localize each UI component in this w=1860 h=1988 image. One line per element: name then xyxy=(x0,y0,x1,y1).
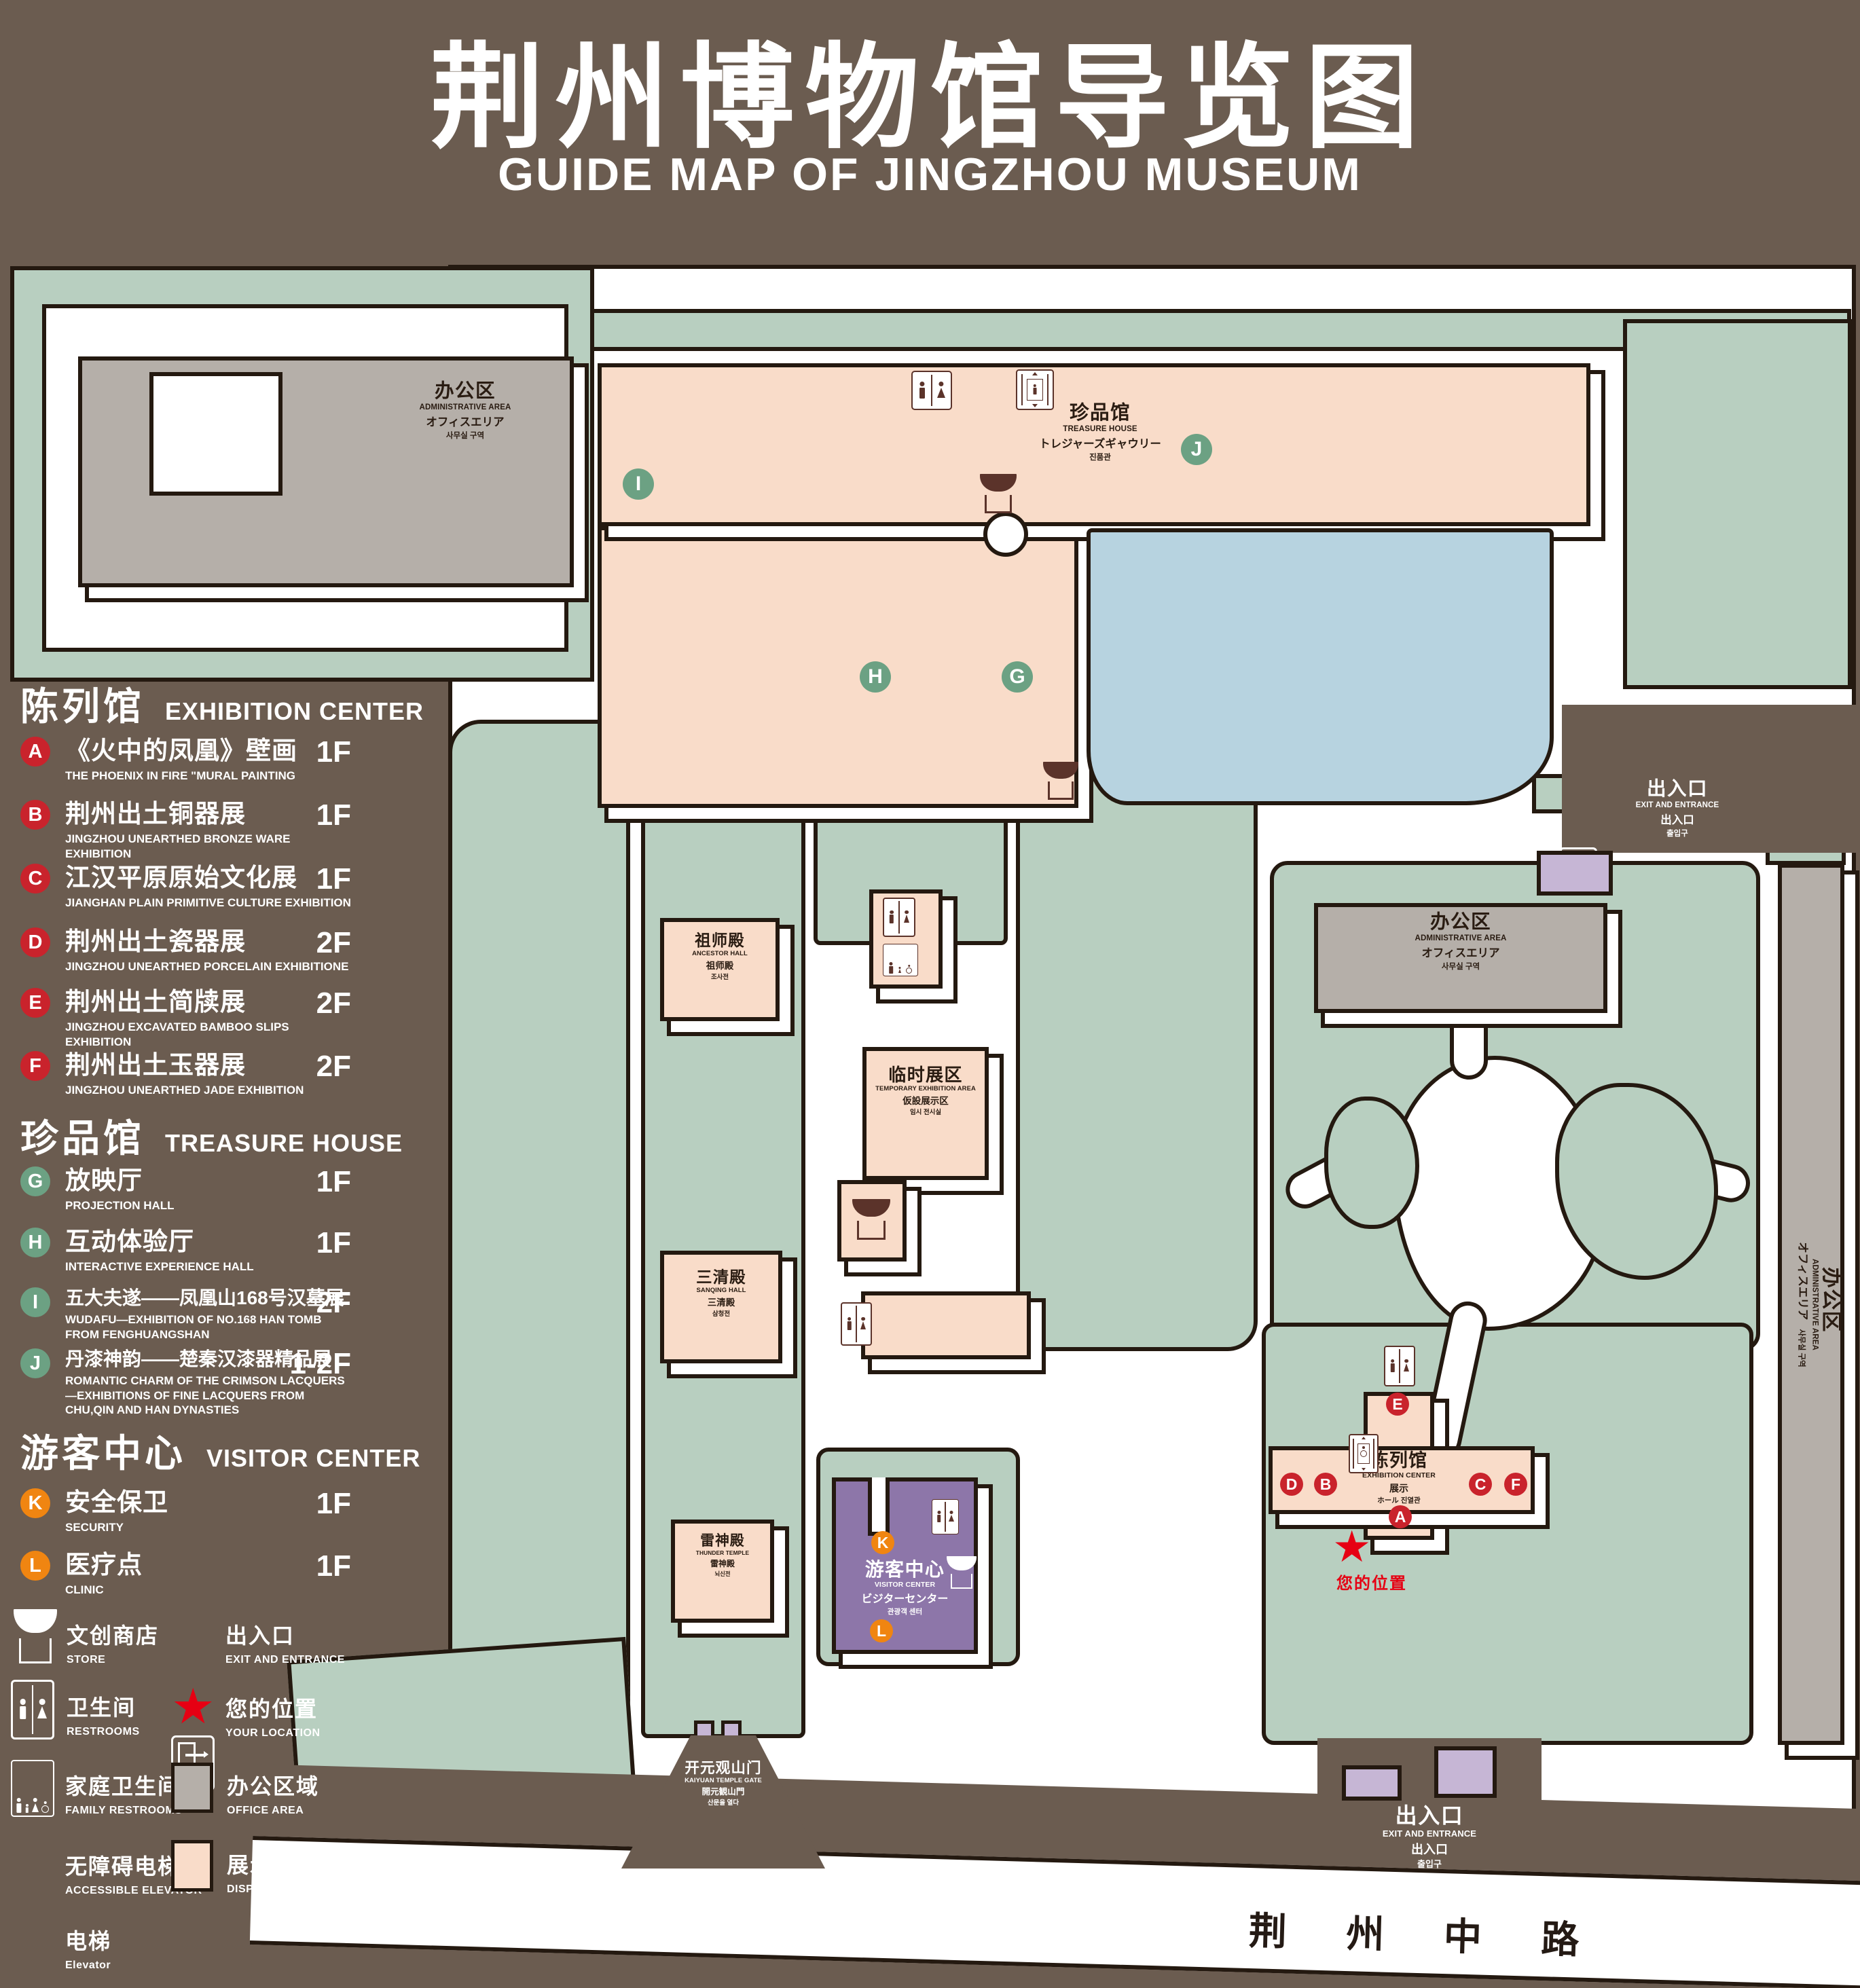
ancestor-hall-label: 祖师殿 ANCESTOR HALL 祖师殿 조사전 xyxy=(660,932,780,981)
family-restroom-icon xyxy=(883,944,918,976)
page-subtitle: GUIDE MAP OF JINGZHOU MUSEUM xyxy=(0,148,1860,201)
admin-side-label: 办公区 ADMINISTRATIVE AREA オフィスエリア 사무실 구역 xyxy=(1779,1067,1844,1543)
lawn-west-column xyxy=(448,720,630,1738)
store-icon xyxy=(980,474,1017,513)
legend-item-g: G 放映厅 PROJECTION HALL 1F xyxy=(20,1166,351,1213)
legend-item-a: A 《火中的凤凰》壁画 THE PHOENIX IN FIRE "MURAL P… xyxy=(20,737,351,784)
legend-item-k: K 安全保卫 SECURITY 1F xyxy=(20,1488,351,1535)
map-badge-k: K xyxy=(871,1531,894,1554)
legend-item-h: H 互动体验厅 INTERACTIVE EXPERIENCE HALL 1F xyxy=(20,1228,351,1274)
badge-k: K xyxy=(20,1488,50,1518)
treasure-house-label: 珍品馆 TREASURE HOUSE トレジャーズギャウリー 진품관 xyxy=(998,402,1202,463)
lawn-east-bit-2 xyxy=(1532,774,1566,813)
store-icon xyxy=(852,1199,890,1240)
legend-symbol-office-area: 办公区域OFFICE AREA xyxy=(227,1769,319,1817)
display-area-swatch xyxy=(171,1840,213,1892)
store-icon xyxy=(1043,762,1078,800)
map-badge-a: A xyxy=(1389,1505,1412,1528)
legend-item-j: J 丹漆神韵——楚秦汉漆器精品展 ROMANTIC CHARM OF THE C… xyxy=(20,1348,351,1417)
map-badge-l: L xyxy=(870,1619,893,1642)
legend-symbol-restrooms: 卫生间RESTROOMS xyxy=(67,1691,140,1738)
restroom-icon xyxy=(932,1499,959,1534)
temporary-exhibition-label: 临时展区 TEMPORARY EXHIBITION AREA 仮設展示区 임시 … xyxy=(854,1065,997,1116)
sanqing-hall-label: 三清殿 SANQING HALL 三清殿 삼청전 xyxy=(660,1268,782,1318)
store-icon xyxy=(14,1609,57,1663)
building-southeast-hall xyxy=(861,1291,1031,1359)
east-exit-label: 出入口 EXIT AND ENTRANCE 出入口 출입구 xyxy=(1575,778,1779,839)
badge-e: E xyxy=(20,988,50,1018)
badge-h: H xyxy=(20,1228,50,1257)
badge-g: G xyxy=(20,1166,50,1196)
restroom-icon xyxy=(841,1302,872,1346)
legend-symbol-elevator: 电梯Elevator xyxy=(65,1924,111,1972)
pond-island xyxy=(983,512,1028,557)
legend-symbol-family-restrooms: 家庭卫生间FAMILY RESTROOMS xyxy=(65,1769,182,1817)
elevator-icon xyxy=(1016,369,1054,410)
legend-item-i: I 五大夫遂——凤凰山168号汉墓展 WUDAFU—EXHIBITION OF … xyxy=(20,1287,351,1342)
badge-b: B xyxy=(20,800,50,830)
map-badge-c: C xyxy=(1469,1473,1492,1496)
your-location-star-icon: ★ xyxy=(1332,1525,1371,1568)
restroom-icon xyxy=(1384,1346,1415,1386)
map-badge-j: J xyxy=(1181,434,1212,465)
page-title: 荆州博物馆导览图 xyxy=(0,5,1860,170)
legend-item-f: F 荆州出土玉器展 JINGZHOU UNEARTHED JADE EXHIBI… xyxy=(20,1051,351,1098)
admin-east-label: 办公区 ADMINISTRATIVE AREA オフィスエリア 사무실 구역 xyxy=(1314,911,1607,972)
admin-nw-courtyard xyxy=(149,372,282,496)
legend-item-c: C 江汉平原原始文化展 JIANGHAN PLAIN PRIMITIVE CUL… xyxy=(20,864,351,910)
legend-item-b: B 荆州出土铜器展 JINGZHOU UNEARTHED BRONZE WARE… xyxy=(20,800,351,861)
lawn-northeast xyxy=(1623,319,1852,689)
map-badge-d: D xyxy=(1280,1473,1303,1496)
legend-item-l: L 医疗点 CLINIC 1F xyxy=(20,1551,351,1598)
badge-j: J xyxy=(20,1348,50,1378)
legend-symbol-your-location: 您的位置YOUR LOCATION xyxy=(225,1692,321,1739)
thunder-temple-label: 雷神殿 THUNDER TEMPLE 雷神殿 뇌신전 xyxy=(671,1533,774,1577)
legend-section-visitor-center: 游客中心VISITOR CENTER xyxy=(20,1423,420,1478)
restroom-icon xyxy=(11,1680,54,1739)
visitor-center-notch xyxy=(868,1477,890,1536)
badge-c: C xyxy=(20,864,50,894)
legend-symbol-store: 文创商店STORE xyxy=(67,1619,159,1666)
kaiyuan-gate-label: 开元观山门 KAIYUAN TEMPLE GATE 開元観山門 산문을 열다 xyxy=(615,1760,832,1807)
map-badge-i: I xyxy=(623,468,654,500)
family-restroom-icon xyxy=(11,1760,54,1817)
pond xyxy=(1087,528,1554,805)
restroom-icon xyxy=(911,371,952,410)
road-label: 荆 州 中 路 xyxy=(1248,1900,1605,1966)
your-location-label: 您的位置 xyxy=(1304,1570,1440,1594)
accessible-elevator-icon xyxy=(1349,1434,1379,1473)
badge-a: A xyxy=(20,737,50,767)
south-entrance-gate xyxy=(1434,1746,1497,1798)
admin-nw-label: 办公区 ADMINISTRATIVE AREA オフィスエリア 사무실 구역 xyxy=(340,380,591,441)
map-badge-f: F xyxy=(1504,1473,1527,1496)
south-entrance-gate xyxy=(1342,1765,1402,1801)
badge-d: D xyxy=(20,927,50,957)
map-badge-h: H xyxy=(860,661,891,693)
map-badge-g: G xyxy=(1002,661,1033,693)
legend-section-treasure-house: 珍品馆TREASURE HOUSE xyxy=(20,1108,403,1163)
legend-symbol-exit: 出入口EXIT AND ENTRANCE xyxy=(225,1619,345,1666)
south-exit-label: 出入口 EXIT AND ENTRANCE 出入口 출입구 xyxy=(1331,1803,1528,1870)
lawn-mid-right xyxy=(1016,720,1258,1351)
legend-item-e: E 荆州出土简牍展 JINGZHOU EXCAVATED BAMBOO SLIP… xyxy=(20,988,351,1049)
badge-i: I xyxy=(20,1287,50,1317)
guide-map-poster: 荆州博物馆导览图 GUIDE MAP OF JINGZHOU MUSEUM 办公… xyxy=(0,0,1860,1988)
east-entrance-gate xyxy=(1537,851,1613,896)
map-badge-e: E xyxy=(1386,1393,1409,1416)
restroom-icon xyxy=(883,898,915,937)
store-icon xyxy=(947,1556,977,1589)
exhibition-center-label: 陈列馆 EXHIBITION CENTER 展示 ホール 진열관 xyxy=(1321,1450,1477,1505)
legend-symbol-display-area: 展示区域DISPLAY AREA xyxy=(227,1848,319,1896)
map-badge-b: B xyxy=(1314,1473,1337,1496)
location-star-icon: ★ xyxy=(171,1682,215,1731)
legend-section-exhibition-center: 陈列馆EXHIBITION CENTER xyxy=(20,676,424,731)
badge-l: L xyxy=(20,1551,50,1581)
office-area-swatch xyxy=(171,1763,213,1813)
legend-item-d: D 荆州出土瓷器展 JINGZHOU UNEARTHED PORCELAIN E… xyxy=(20,927,351,974)
badge-f: F xyxy=(20,1051,50,1081)
